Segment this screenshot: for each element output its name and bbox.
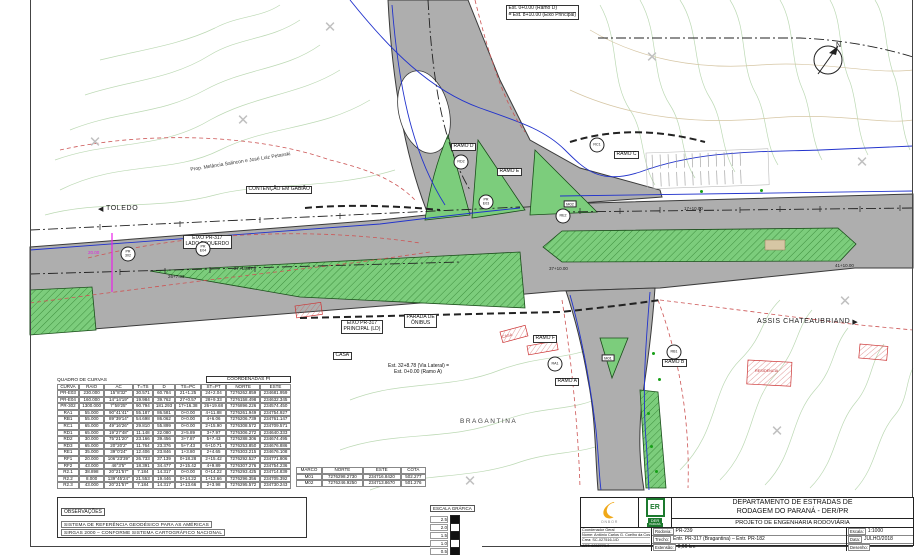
table-cell: 234771.806: [260, 456, 291, 463]
table-cell: 28+9.33: [201, 397, 226, 404]
escala-label: Escala:: [848, 528, 866, 535]
table-cell: 39.456: [153, 436, 176, 443]
table-cell: 75°21'20": [104, 436, 133, 443]
scale-row: 0.5: [430, 547, 482, 555]
table-cell: RF2: [57, 463, 79, 470]
table-cell: 65.000: [79, 423, 104, 430]
table-row: PR-E03230.00015°8'32"30.57160.78421+1.25…: [57, 390, 291, 397]
marker-line: M02: [566, 202, 574, 206]
observacoes-title: OBSERVAÇÕES: [61, 508, 105, 516]
table-cell: 65.000: [79, 443, 104, 450]
table-cell: 19.446: [153, 476, 176, 483]
marker-line: RD2: [457, 160, 464, 164]
table-cell: 139°45'24": [104, 476, 133, 483]
data-value: JULHO/2018: [864, 536, 893, 542]
table-cell: 17+16.38: [175, 403, 200, 410]
der-logo: ER DER PARANÁ: [639, 498, 672, 527]
ramo-d-station-note: Est. 0+0.00 (Ramo D) = Est. 8+10.00 (Eix…: [506, 5, 579, 20]
survey-cross-icon: ✕: [89, 133, 102, 151]
table-cell: 2+15.90: [201, 423, 226, 430]
escala-row: Escala: 1:1000: [847, 528, 913, 536]
table-cell: 234676.886: [260, 443, 291, 450]
station-label: 17+10.00: [684, 206, 703, 211]
survey-dot: [652, 352, 655, 355]
der-logo-icon: ER: [646, 498, 665, 517]
col-header: NORTE: [322, 467, 363, 474]
table-cell: 90°41'41": [104, 410, 133, 417]
survey-dot: [647, 412, 650, 415]
table-cell: 0+14.22: [175, 476, 200, 483]
table-cell: 7276303.215: [226, 449, 260, 456]
col-header: RAIO: [79, 384, 104, 391]
table-cell: 181.293: [153, 403, 176, 410]
survey-cross-icon: ✕: [324, 18, 337, 36]
table-cell: 4+11.88: [201, 410, 226, 417]
observacoes-line1: SISTEMA DE REFERÊNCIA GEODÉSICO PARA AS …: [61, 521, 212, 528]
ramp-label-ramo-d: RAMO D: [451, 143, 476, 151]
marco-table: MARCONORTEESTECOTAM017276298.2730234716.…: [296, 467, 426, 487]
ramo-a-station-note: Est. 32+8.78 (Via Lateral) = Est. 0+0.00…: [388, 364, 449, 376]
table-cell: 18.391: [133, 463, 153, 470]
table-cell: PR-E03: [57, 390, 79, 397]
table-cell: 37.139: [153, 456, 176, 463]
scale-tick-label: 1.0: [430, 540, 448, 547]
ramp-label-ramo-c: RAMO C: [614, 151, 639, 159]
table-cell: 60.784: [153, 390, 176, 397]
table-row: R2.343.00020°21'57"7.18414.3171+13.662+3…: [57, 482, 291, 489]
table-cell: 55.000: [79, 410, 104, 417]
observacoes-panel: OBSERVAÇÕES SISTEMA DE REFERÊNCIA GEODÉS…: [57, 497, 307, 538]
table-cell: 24+2.04: [201, 390, 226, 397]
table-row: M027276246.9250234713.8670501.276: [296, 480, 426, 487]
table-cell: 7.184: [133, 469, 153, 476]
table-cell: 7.184: [133, 482, 153, 489]
table-cell: 234709.571: [260, 423, 291, 430]
table-cell: 15°8'32": [104, 390, 133, 397]
table-cell: RE1: [57, 449, 79, 456]
curve-table-title: QUADRO DE CURVAS: [57, 378, 107, 383]
col-header: MARCO: [296, 467, 322, 474]
onbor-logo: ONBOR: [581, 498, 639, 527]
note-line: = Est. 8+10.00 (Eixo Principal): [509, 12, 577, 19]
coordinator-art: ART: 6052773-9: [582, 544, 650, 548]
table-cell: 230.000: [79, 390, 104, 397]
table-cell: 0+0.00: [175, 410, 200, 417]
table-cell: RD1: [57, 430, 79, 437]
table-cell: 39°0'24": [104, 449, 133, 456]
rodovia-row: Rodovia: PR-239: [652, 528, 846, 536]
table-cell: 90.794: [133, 403, 153, 410]
scale-tick-label: 2.5: [430, 516, 448, 523]
table-cell: 234713.8670: [363, 480, 401, 487]
onbor-swoosh-icon: [599, 501, 621, 519]
survey-cross-icon: ✕: [771, 422, 784, 440]
table-cell: 501.276: [401, 480, 426, 487]
marker-line: RA1: [552, 362, 559, 366]
marco-table-panel: MARCONORTEESTECOTAM017276298.2730234716.…: [296, 467, 426, 487]
table-cell: 26.733: [133, 456, 153, 463]
col-header: TS=PC: [175, 384, 200, 391]
table-cell: 106°23'39": [104, 456, 133, 463]
marker-line: E04: [200, 249, 206, 253]
rodovia-value: PR-239: [676, 528, 693, 534]
scale-tick-label: 2.0: [430, 524, 448, 531]
col-header: NORTE: [226, 384, 260, 391]
table-cell: 20°21'57": [104, 482, 133, 489]
table-cell: 2+15.42: [175, 463, 200, 470]
curve-marker-m02: M02: [564, 200, 577, 207]
station-label: 37+10.00: [549, 266, 568, 271]
table-row: RA155.00090°41'41"55.18786.5810+0.004+11…: [57, 410, 291, 417]
table-cell: 11.148: [133, 430, 153, 437]
table-cell: 55.899: [153, 423, 176, 430]
col-header: T=TS: [133, 384, 153, 391]
data-label: Data:: [848, 536, 862, 543]
table-cell: 49°16'26": [104, 423, 133, 430]
table-cell: 35.000: [79, 449, 104, 456]
table-row: PR-3021300.0007°59'25"90.794181.29317+16…: [57, 403, 291, 410]
der-logo-sub: PARANÁ: [647, 523, 662, 527]
table-cell: 4+9.89: [201, 463, 226, 470]
col-header: ST=PT: [201, 384, 226, 391]
table-cell: 7276896.226: [226, 403, 260, 410]
marker-line: RB1: [671, 350, 678, 354]
table-cell: 7276206.739: [226, 416, 260, 423]
curve-marker-re2: RE2: [556, 209, 571, 224]
coordinates-header: COORDENADAS PI: [206, 376, 291, 383]
table-cell: RC1: [57, 423, 79, 430]
extensao-value: 9,66 km: [678, 544, 696, 550]
table-row: R2.138.89820°21'57"7.18414.3170+0.000+14…: [57, 469, 291, 476]
curve-marker-m01: M01: [602, 354, 615, 361]
table-cell: 89°39'14": [104, 416, 133, 423]
table-cell: 21+1.25: [175, 390, 200, 397]
table-cell: 3+7.97: [201, 430, 226, 437]
extensao-label: Extensão:: [653, 544, 676, 551]
observacoes-line2: SIRGAS 2000 – CONFORME SISTEMA CARTOGRÁF…: [61, 529, 225, 536]
scale-tick-label: 1.5: [430, 532, 448, 539]
table-cell: 0+0.00: [175, 469, 200, 476]
assis-direction: ASSIS CHATEAUBRIAND ▶: [757, 318, 858, 326]
table-cell: 19.984: [133, 397, 153, 404]
table-cell: 234640.333: [260, 430, 291, 437]
table-cell: 7276288.306: [226, 436, 260, 443]
table-cell: 27+0.57: [175, 397, 200, 404]
table-cell: 7276292.527: [226, 456, 260, 463]
marker-line: 302: [125, 254, 131, 258]
table-cell: 6+10.71: [201, 443, 226, 450]
table-cell: 55.000: [79, 416, 104, 423]
table-cell: 7276158.498: [226, 397, 260, 404]
curve-marker-ra1: RA1: [548, 357, 563, 372]
toledo-label: TOLEDO: [106, 205, 138, 213]
table-cell: 8.000: [79, 476, 104, 483]
survey-cross-icon: ✕: [646, 48, 659, 66]
station-label: 41+10.00: [835, 263, 854, 268]
survey-dot: [700, 190, 703, 193]
curve-table-panel: QUADRO DE CURVAS COORDENADAS PI CURVARAI…: [57, 376, 291, 489]
marker-line: M01: [604, 356, 612, 360]
table-cell: 23.166: [133, 436, 153, 443]
table-cell: 7276246.9250: [322, 480, 363, 487]
survey-cross-icon: ✕: [237, 111, 250, 129]
table-cell: 2+5.89: [175, 430, 200, 437]
table-cell: 234632.345: [260, 397, 291, 404]
survey-dot: [760, 189, 763, 192]
table-cell: 234705.392: [260, 476, 291, 483]
toledo-direction: ◀ TOLEDO: [98, 205, 138, 213]
scale-segment: [450, 547, 460, 555]
curve-table: CURVARAIOACT=TSDTS=PCST=PTNORTEESTEPR-E0…: [57, 384, 291, 490]
table-cell: 7276295.572: [226, 482, 260, 489]
curve-marker-rb1: RB1: [667, 345, 682, 360]
table-cell: 2+3.98: [201, 482, 226, 489]
assis-arrow-icon: ▶: [852, 319, 858, 326]
table-cell: R2.1: [57, 469, 79, 476]
table-cell: RB1: [57, 416, 79, 423]
table-cell: 4+6.06: [201, 416, 226, 423]
table-cell: 2+15.42: [201, 456, 226, 463]
table-cell: 34.477: [153, 463, 176, 470]
table-cell: 20°20'2": [104, 443, 133, 450]
engineering-drawing-sheet: { "map": { "icons": {"arrow_left":"◀","a…: [0, 0, 915, 555]
col-header: CURVA: [57, 384, 79, 391]
scale-bar-title: ESCALA GRÁFICA: [430, 505, 475, 512]
table-cell: 1+13.66: [201, 476, 226, 483]
table-cell: R2.2: [57, 476, 79, 483]
table-cell: 7°59'25": [104, 403, 133, 410]
table-cell: 20.000: [79, 456, 104, 463]
survey-cross-icon: ✕: [464, 472, 477, 490]
table-row: RE135.00039°0'24"12.40623.8461+3.802+4.6…: [57, 449, 291, 456]
gabion-label: CONTENÇÃO EM GABIÃO: [246, 186, 312, 194]
table-row: RD165.00019°27'48"11.14822.0802+5.893+7.…: [57, 430, 291, 437]
marker-line: E03: [483, 202, 489, 206]
survey-dot: [650, 445, 653, 448]
table-cell: 86.062: [153, 416, 176, 423]
table-cell: R2.3: [57, 482, 79, 489]
table-row: M017276298.2730234716.8420502.277: [296, 474, 426, 481]
table-cell: 54.698: [133, 416, 153, 423]
scale-bar: ESCALA GRÁFICA 2.52.01.51.00.5: [430, 497, 482, 555]
curve-marker-rc1: RC1: [590, 138, 605, 153]
table-cell: 502.277: [401, 474, 426, 481]
table-cell: 1300.000: [79, 403, 104, 410]
residencia-label: RESIDENCIA: [755, 369, 778, 373]
data-row: Data: JULHO/2018: [847, 536, 913, 544]
survey-cross-icon: ✕: [839, 292, 852, 310]
table-cell: 43.000: [79, 463, 104, 470]
table-cell: 23.376: [153, 443, 176, 450]
table-row: RD365.00020°20'2"11.76423.3765+7.436+10.…: [57, 443, 291, 450]
table-cell: M02: [296, 480, 322, 487]
table-cell: 7276262.859: [226, 390, 260, 397]
table-cell: 234676.108: [260, 449, 291, 456]
table-cell: 234714.839: [260, 469, 291, 476]
col-header: ESTE: [363, 467, 401, 474]
table-cell: 234681.959: [260, 390, 291, 397]
table-row: RB155.00089°39'14"54.69886.0620+0.004+6.…: [57, 416, 291, 423]
table-cell: 86.581: [153, 410, 176, 417]
ramp-label-ramo-b: RAMO B: [662, 359, 687, 367]
table-cell: 19°27'48": [104, 430, 133, 437]
col-header: COTA: [401, 467, 426, 474]
marker-line: RC1: [593, 143, 600, 147]
desenho-row: Desenho:: [847, 544, 913, 551]
casa-label: CASA: [333, 352, 352, 360]
table-row: R2.28.000139°45'24"21.55319.4460+14.221+…: [57, 476, 291, 483]
station-label: 20.00: [88, 250, 99, 255]
table-cell: 43.000: [79, 482, 104, 489]
table-cell: 160.000: [79, 397, 104, 404]
note-line: Est. 0+0.00 (Ramo A): [394, 370, 449, 376]
survey-dot: [658, 378, 661, 381]
ramp-label-ramo-f: RAMO F: [533, 335, 557, 343]
assis-label: ASSIS CHATEAUBRIAND: [757, 318, 850, 326]
note-line: ÔNIBUS: [407, 321, 435, 327]
table-row: RC165.00049°16'26"29.81055.8990+0.002+15…: [57, 423, 291, 430]
rodovia-label: Rodovia:: [653, 528, 674, 535]
org-line1: DEPARTAMENTO DE ESTRADAS DE: [732, 499, 852, 508]
table-cell: 5+7.43: [175, 443, 200, 450]
table-cell: 2+4.65: [201, 449, 226, 456]
table-cell: RA1: [57, 410, 79, 417]
table-cell: 11.764: [133, 443, 153, 450]
table-cell: 234761.147: [260, 416, 291, 423]
scale-bar-rows: 2.52.01.51.00.5: [430, 515, 482, 555]
table-cell: 38.898: [79, 469, 104, 476]
table-cell: 26+19.68: [201, 403, 226, 410]
table-cell: 234716.8420: [363, 474, 401, 481]
ramp-label-ramo-e: RAMO E: [497, 168, 522, 176]
table-cell: 234754.236: [260, 463, 291, 470]
table-cell: 22.080: [153, 430, 176, 437]
table-cell: 39.762: [153, 397, 176, 404]
curve-marker-pr-e03: PRE03: [479, 195, 494, 210]
table-cell: PR-302: [57, 403, 79, 410]
scale-tick-label: 0.5: [430, 548, 448, 555]
table-cell: 234674.495: [260, 436, 291, 443]
title-block: ONBOR ER DER PARANÁ DEPARTAMENTO DE ESTR…: [580, 497, 914, 546]
toledo-arrow-icon: ◀: [98, 206, 104, 213]
bragantina-label: BRAGANTINA: [460, 418, 517, 425]
onbor-name: ONBOR: [601, 520, 618, 524]
curve-marker-pr-302: PR302: [121, 247, 136, 262]
table-row: RF243.00046°3'5"18.39134.4772+15.424+9.8…: [57, 463, 291, 470]
table-cell: PR-E04: [57, 397, 79, 404]
project-title: PROJETO DE ENGENHARIA RODOVIÁRIA: [672, 518, 913, 527]
desenho-label: Desenho:: [848, 544, 870, 551]
ramp-label-ramo-a: RAMO A: [555, 378, 579, 386]
table-row: PR-E04160.00014°14'19"19.98439.76227+0.5…: [57, 397, 291, 404]
bus-stop-label: PARADA DE ÔNIBUS: [404, 314, 437, 328]
table-cell: 12.406: [133, 449, 153, 456]
table-cell: 234574.450: [260, 403, 291, 410]
survey-dot: [655, 470, 658, 473]
table-cell: 29.810: [133, 423, 153, 430]
survey-cross-icon: ✕: [856, 153, 869, 171]
extensao-row: Extensão: 9,66 km: [652, 544, 846, 551]
table-cell: 7276307.276: [226, 463, 260, 470]
table-cell: 3+7.87: [175, 436, 200, 443]
table-cell: 23.846: [153, 449, 176, 456]
table-cell: 7276261.949: [226, 410, 260, 417]
table-cell: 14.317: [153, 469, 176, 476]
table-cell: 7276293.425: [226, 469, 260, 476]
table-cell: 65.000: [79, 430, 104, 437]
table-row: RD230.00075°21'20"23.16639.4563+7.875+7.…: [57, 436, 291, 443]
table-cell: M01: [296, 474, 322, 481]
table-cell: 7276296.356: [226, 476, 260, 483]
table-cell: 234754.927: [260, 410, 291, 417]
col-header: ESTE: [260, 384, 291, 391]
escala-value: 1:1000: [868, 528, 883, 534]
table-cell: RD2: [57, 436, 79, 443]
table-cell: 14°14'19": [104, 397, 133, 404]
org-line2: RODAGEM DO PARANÁ - DER/PR: [737, 508, 849, 517]
coordinator-block: Coordenador Geral Nome: Antônio Carlos G…: [581, 528, 652, 551]
table-cell: 21.553: [133, 476, 153, 483]
table-cell: 55.187: [133, 410, 153, 417]
eixo-principal-label: EIXO PR-317 PRINCIPAL (LD): [341, 320, 383, 334]
curve-marker-rd2: RD2: [454, 155, 469, 170]
trecho-value: Entr. PR-317 (Bragantina) – Entr. PR-182: [673, 536, 765, 542]
table-cell: RD3: [57, 443, 79, 450]
table-cell: 1+13.66: [175, 482, 200, 489]
trecho-row: Trecho: Entr. PR-317 (Bragantina) – Entr…: [652, 536, 846, 544]
north-letter: N: [836, 42, 841, 50]
table-cell: 234730.243: [260, 482, 291, 489]
table-cell: 7276298.2730: [322, 474, 363, 481]
table-cell: 30.000: [79, 436, 104, 443]
col-header: AC: [104, 384, 133, 391]
table-cell: 0+0.00: [175, 423, 200, 430]
table-cell: 20°21'57": [104, 469, 133, 476]
table-cell: 14.317: [153, 482, 176, 489]
table-cell: 5+7.43: [201, 436, 226, 443]
station-label: 27+15.97: [234, 266, 253, 271]
marker-line: RE2: [560, 214, 567, 218]
table-cell: 7276308.572: [226, 423, 260, 430]
table-cell: 46°3'5": [104, 463, 133, 470]
table-cell: RF1: [57, 456, 79, 463]
table-cell: 0+0.00: [175, 416, 200, 423]
table-cell: 1+3.80: [175, 449, 200, 456]
curve-marker-pr-e04: PRE04: [196, 242, 211, 257]
col-header: D: [153, 384, 176, 391]
station-label: 26+7.33: [168, 274, 184, 279]
note-line: PRINCIPAL (LD): [344, 327, 381, 333]
table-cell: 30.571: [133, 390, 153, 397]
table-cell: 7276306.272: [226, 430, 260, 437]
table-row: RF120.000106°23'39"26.73337.1390+18.282+…: [57, 456, 291, 463]
table-cell: 0+18.28: [175, 456, 200, 463]
table-cell: 0+14.22: [201, 469, 226, 476]
table-cell: 7276253.850: [226, 443, 260, 450]
trecho-label: Trecho:: [653, 536, 671, 543]
